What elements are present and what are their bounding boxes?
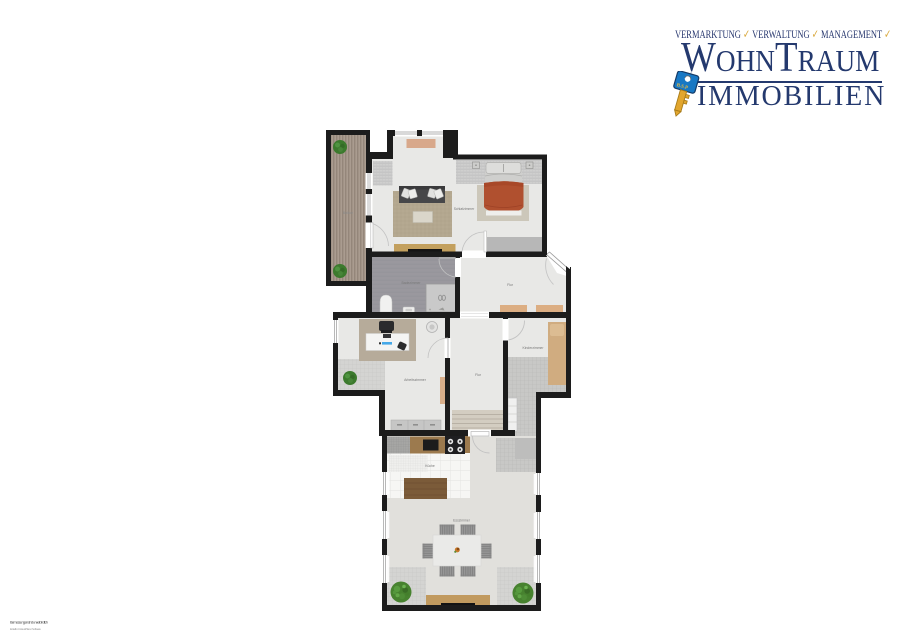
svg-text:Bemessungen sind unverbindlich: Bemessungen sind unverbindlich xyxy=(10,621,48,625)
svg-text:Erstellt mit HausPlaner Softwa: Erstellt mit HausPlaner Software xyxy=(10,627,41,631)
svg-text:Küche: Küche xyxy=(425,464,435,468)
svg-text:Balkon: Balkon xyxy=(343,211,353,215)
svg-text:Arbeitszimmer: Arbeitszimmer xyxy=(404,378,427,382)
svg-text:Badezimmer: Badezimmer xyxy=(401,281,421,285)
svg-text:Esszimmer: Esszimmer xyxy=(453,519,471,523)
svg-text:Schlafzimmer: Schlafzimmer xyxy=(454,207,475,211)
svg-text:Flur: Flur xyxy=(507,283,514,287)
svg-text:Flur: Flur xyxy=(475,373,482,377)
svg-text:Kinderzimmer: Kinderzimmer xyxy=(523,346,545,350)
